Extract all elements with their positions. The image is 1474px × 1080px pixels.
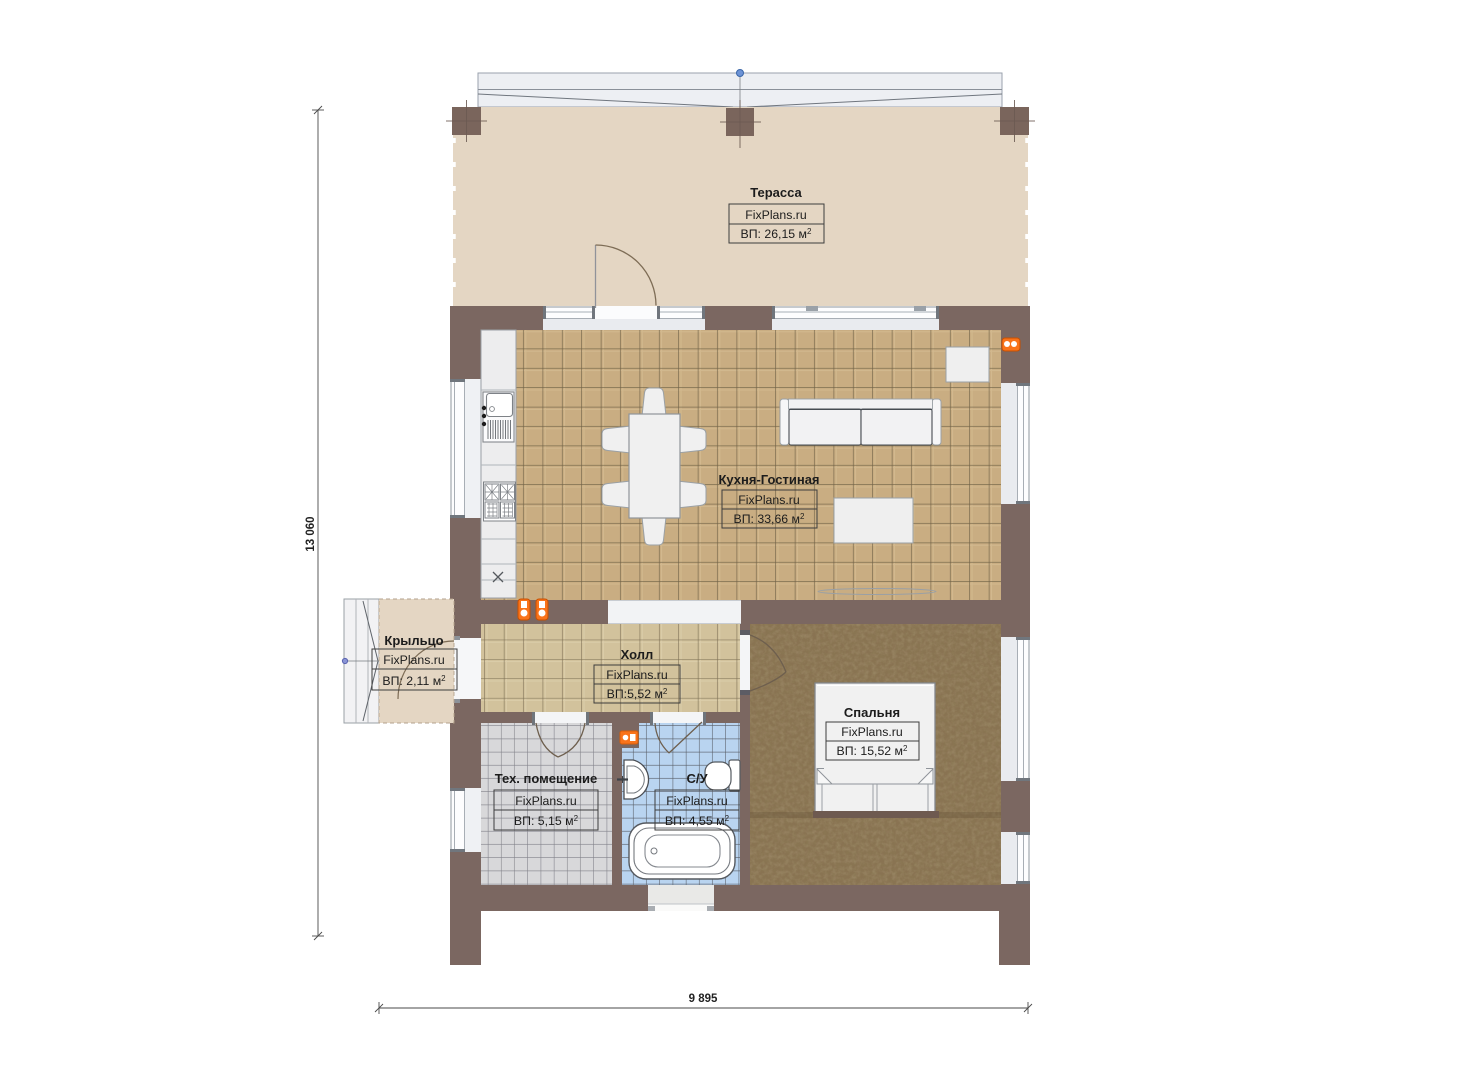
svg-text:Тех. помещение: Тех. помещение bbox=[495, 771, 598, 786]
svg-text:FixPlans.ru: FixPlans.ru bbox=[666, 794, 728, 808]
svg-text:Крыльцо: Крыльцо bbox=[384, 633, 443, 648]
svg-text:ВП: 5,15 м2: ВП: 5,15 м2 bbox=[514, 814, 579, 828]
svg-text:9 895: 9 895 bbox=[689, 993, 718, 1005]
svg-text:FixPlans.ru: FixPlans.ru bbox=[745, 208, 807, 222]
svg-text:FixPlans.ru: FixPlans.ru bbox=[738, 493, 800, 507]
svg-text:Холл: Холл bbox=[621, 647, 654, 662]
svg-text:ВП: 33,66 м2: ВП: 33,66 м2 bbox=[734, 512, 806, 526]
svg-text:Кухня-Гостиная: Кухня-Гостиная bbox=[718, 472, 819, 487]
svg-text:С/У: С/У bbox=[686, 771, 708, 786]
svg-text:FixPlans.ru: FixPlans.ru bbox=[383, 653, 445, 667]
svg-text:ВП: 15,52 м2: ВП: 15,52 м2 bbox=[837, 744, 909, 758]
svg-text:13 060: 13 060 bbox=[305, 516, 317, 551]
svg-text:ВП: 4,55 м2: ВП: 4,55 м2 bbox=[665, 814, 730, 828]
svg-text:Спальня: Спальня bbox=[844, 705, 900, 720]
svg-text:FixPlans.ru: FixPlans.ru bbox=[515, 794, 577, 808]
svg-text:FixPlans.ru: FixPlans.ru bbox=[606, 668, 668, 682]
svg-text:Терасса: Терасса bbox=[750, 185, 802, 200]
svg-text:FixPlans.ru: FixPlans.ru bbox=[841, 725, 903, 739]
svg-text:ВП: 2,11 м2: ВП: 2,11 м2 bbox=[382, 674, 446, 688]
svg-text:ВП:5,52 м2: ВП:5,52 м2 bbox=[607, 687, 668, 701]
svg-text:ВП: 26,15 м2: ВП: 26,15 м2 bbox=[741, 227, 813, 241]
